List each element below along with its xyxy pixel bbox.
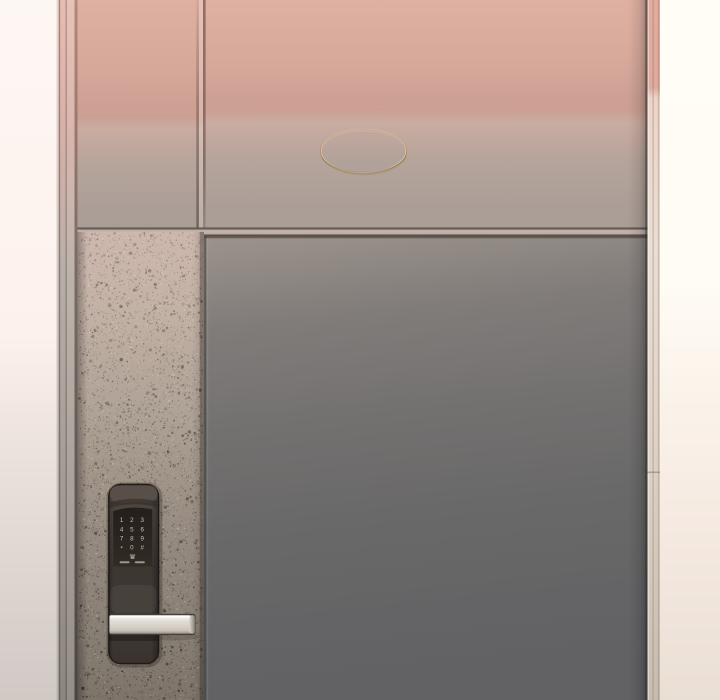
svg-text:2: 2 — [130, 517, 134, 524]
svg-text:1: 1 — [120, 517, 124, 524]
svg-text:6: 6 — [140, 527, 144, 534]
svg-text:0: 0 — [130, 545, 134, 552]
svg-text:8: 8 — [130, 536, 134, 543]
svg-text:7: 7 — [120, 536, 124, 543]
svg-text:9: 9 — [140, 536, 144, 543]
svg-text:3: 3 — [140, 517, 144, 524]
svg-text:5: 5 — [130, 527, 134, 534]
svg-text:4: 4 — [120, 527, 124, 534]
svg-text:#: # — [140, 545, 144, 552]
